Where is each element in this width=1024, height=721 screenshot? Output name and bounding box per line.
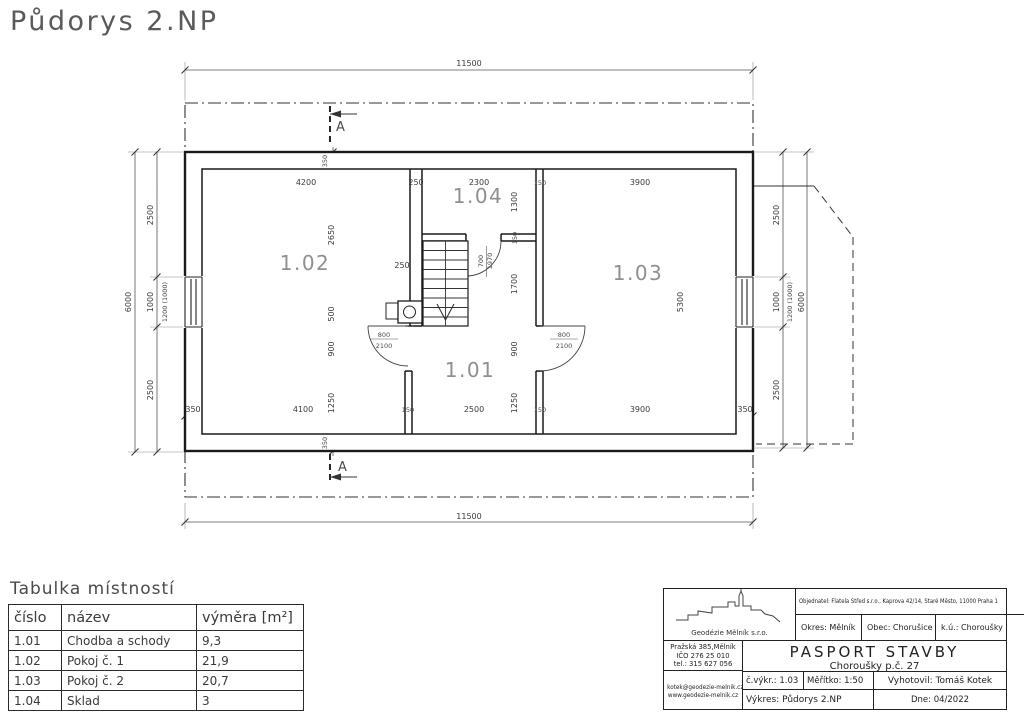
company-contacts: kotek@geodezie-melnik.cz www.geodezie-me… bbox=[664, 671, 742, 709]
dim-bot-150r: 150 bbox=[534, 406, 546, 414]
room-table-title: Tabulka místností bbox=[10, 579, 304, 599]
table-row: 1.04 Sklad 3 bbox=[9, 691, 304, 711]
room-name: Sklad bbox=[62, 691, 197, 711]
room-label-102: 1.02 bbox=[280, 251, 331, 275]
dim-bot-2500: 2500 bbox=[464, 405, 484, 414]
room-table-header-row: číslo název výměra [m²] bbox=[9, 605, 304, 631]
table-row: 1.01 Chodba a schody 9,3 bbox=[9, 631, 304, 651]
room-table: číslo název výměra [m²] 1.01 Chodba a sc… bbox=[8, 604, 304, 711]
company-email: kotek@geodezie-melnik.cz bbox=[667, 684, 739, 692]
table-row: 1.03 Pokoj č. 2 20,7 bbox=[9, 671, 304, 691]
dim-bot-4100: 4100 bbox=[293, 405, 313, 414]
date-cell: Dne: 04/2022 bbox=[874, 690, 1006, 709]
table-row: 1.02 Pokoj č. 1 21,9 bbox=[9, 651, 304, 671]
neighbor-outline-dashed bbox=[753, 186, 853, 444]
project-title: PASPORT STAVBY bbox=[743, 643, 1006, 661]
dim-left-6000: 6000 bbox=[124, 292, 133, 312]
room-number: 1.03 bbox=[9, 671, 62, 691]
district-cell: Okres: Mělník bbox=[796, 615, 862, 640]
dim-right-window-note: 1200 (1000) bbox=[786, 282, 794, 322]
room-label-104: 1.04 bbox=[453, 184, 504, 208]
col-header-area: výměra [m²] bbox=[197, 605, 304, 631]
section-label-bottom: A bbox=[338, 460, 347, 475]
address-line3: tel.: 315 627 056 bbox=[664, 660, 742, 669]
room-number: 1.01 bbox=[9, 631, 62, 651]
room-area: 3 bbox=[197, 691, 304, 711]
dim-bot-350r: 350 bbox=[737, 405, 752, 414]
window-right bbox=[734, 276, 755, 328]
dim-v-900l: 900 bbox=[327, 341, 336, 356]
dim-top-150: 150 bbox=[534, 179, 546, 187]
dim-v-900r: 900 bbox=[510, 341, 519, 356]
dim-wall-350-bottom: 350 bbox=[321, 437, 329, 449]
room-number: 1.04 bbox=[9, 691, 62, 711]
dim-overall-bottom: 11500 bbox=[456, 512, 481, 521]
door-landing-height: 1970 bbox=[486, 253, 494, 270]
dim-v-2650: 2650 bbox=[327, 225, 336, 245]
window-left bbox=[183, 276, 204, 328]
room-table-section: Tabulka místností číslo název výměra [m²… bbox=[8, 579, 304, 711]
dim-bot-150l: 150 bbox=[402, 406, 414, 414]
dim-right-2500b: 2500 bbox=[772, 380, 781, 400]
dim-v-500: 500 bbox=[327, 306, 336, 321]
room-name: Chodba a schody bbox=[62, 631, 197, 651]
dim-v-1250l: 1250 bbox=[327, 393, 336, 413]
municipality-cell: Obec: Chorušice bbox=[862, 615, 936, 640]
room-label-101: 1.01 bbox=[445, 358, 496, 382]
dim-left-2500a: 2500 bbox=[146, 205, 155, 225]
author-cell: Vyhotovil: Tomáš Kotek bbox=[874, 672, 1006, 690]
dim-v-5300: 5300 bbox=[676, 292, 685, 312]
dim-overall-top: 11500 bbox=[456, 59, 481, 68]
dim-v-1700: 1700 bbox=[510, 274, 519, 294]
dim-top-250: 250 bbox=[408, 178, 423, 187]
room-label-103: 1.03 bbox=[613, 261, 664, 285]
dim-top-4200: 4200 bbox=[296, 178, 316, 187]
door102-height: 2100 bbox=[376, 342, 393, 350]
dim-left-window-note: 1200 (1000) bbox=[161, 282, 169, 322]
dim-right-6000: 6000 bbox=[797, 292, 806, 312]
room-area: 21,9 bbox=[197, 651, 304, 671]
dim-v-1250r: 1250 bbox=[510, 393, 519, 413]
dim-v-150: 150 bbox=[511, 232, 519, 244]
section-label-top: A bbox=[336, 120, 345, 135]
dim-bot-350l: 350 bbox=[185, 405, 200, 414]
section-mark-top: A bbox=[330, 106, 357, 142]
door103-height: 2100 bbox=[556, 342, 573, 350]
dim-left-2500b: 2500 bbox=[146, 380, 155, 400]
client-cell: Objednatel: Flatela Střed s.r.o., Kaprov… bbox=[796, 589, 1024, 615]
door102-width: 800 bbox=[378, 331, 390, 339]
scale-cell: Měřítko: 1:50 bbox=[804, 672, 873, 689]
project-title-cell: PASPORT STAVBY Choroušky p.č. 27 bbox=[743, 641, 1006, 672]
dim-stair-250: 250 bbox=[394, 261, 409, 270]
company-logo: Geodézie Mělník s.r.o. bbox=[664, 589, 796, 640]
drawing-number-cell: č.výkr.: 1.03 bbox=[743, 672, 804, 689]
title-block: Geodézie Mělník s.r.o. Objednatel: Flate… bbox=[663, 588, 1007, 710]
company-web: www.geodezie-melnik.cz bbox=[667, 692, 739, 700]
project-subtitle: Choroušky p.č. 27 bbox=[743, 661, 1006, 672]
dim-top-3900: 3900 bbox=[630, 178, 650, 187]
dim-wall-350-top: 350 bbox=[321, 155, 329, 167]
cadastre-cell: k.ú.: Choroušky bbox=[936, 615, 1024, 640]
stairs bbox=[423, 241, 468, 326]
address-line1: Pražská 385,Mělník bbox=[664, 643, 742, 652]
door-landing-width: 700 bbox=[477, 255, 485, 267]
dim-right-1000: 1000 bbox=[772, 292, 781, 312]
drawing-name-cell: Výkres: Půdorys 2.NP bbox=[743, 690, 873, 709]
room-area: 9,3 bbox=[197, 631, 304, 651]
address-line2: IČO 276 25 010 bbox=[664, 652, 742, 661]
client-text: Objednatel: Flatela Střed s.r.o., Kaprov… bbox=[799, 598, 998, 605]
company-address: Pražská 385,Mělník IČO 276 25 010 tel.: … bbox=[664, 641, 742, 671]
dim-left-1000: 1000 bbox=[146, 292, 155, 312]
col-header-number: číslo bbox=[9, 605, 62, 631]
room-area: 20,7 bbox=[197, 671, 304, 691]
col-header-name: název bbox=[62, 605, 197, 631]
dim-v-1300: 1300 bbox=[510, 192, 519, 212]
room-name: Pokoj č. 2 bbox=[62, 671, 197, 691]
dim-bot-3900: 3900 bbox=[630, 405, 650, 414]
room-name: Pokoj č. 1 bbox=[62, 651, 197, 671]
room-number: 1.02 bbox=[9, 651, 62, 671]
section-mark-bottom: A bbox=[330, 454, 357, 484]
door103-width: 800 bbox=[558, 331, 570, 339]
dim-right-2500a: 2500 bbox=[772, 205, 781, 225]
company-name: Geodézie Mělník s.r.o. bbox=[664, 629, 795, 637]
